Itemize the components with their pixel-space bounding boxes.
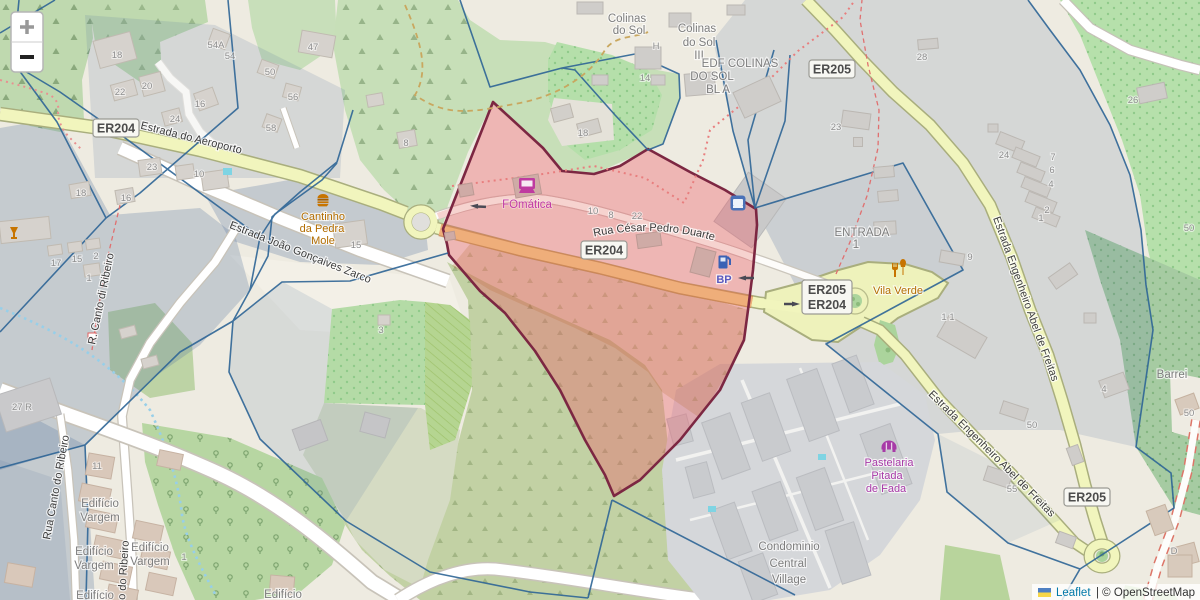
svg-text:Colinas: Colinas (608, 13, 647, 25)
svg-text:15: 15 (72, 254, 83, 265)
svg-text:1: 1 (86, 273, 91, 284)
svg-text:18: 18 (112, 50, 123, 61)
svg-text:| © OpenStreetMap: | © OpenStreetMap (1096, 587, 1195, 599)
svg-text:4: 4 (1101, 384, 1106, 395)
svg-text:EDF COLINAS: EDF COLINAS (702, 58, 779, 70)
svg-text:Vargem: Vargem (74, 560, 113, 572)
svg-text:23: 23 (147, 162, 158, 173)
svg-text:BP: BP (716, 274, 731, 286)
svg-text:Mole: Mole (311, 235, 335, 247)
svg-text:1: 1 (853, 239, 859, 251)
svg-text:2: 2 (93, 251, 98, 262)
svg-text:do Sol: do Sol (613, 25, 646, 37)
svg-text:11: 11 (92, 461, 102, 472)
svg-text:DO SOL: DO SOL (690, 71, 734, 83)
svg-text:10: 10 (194, 169, 205, 180)
svg-text:ER204: ER204 (97, 122, 135, 136)
svg-text:1 1: 1 1 (941, 312, 954, 323)
svg-text:26: 26 (1128, 95, 1139, 106)
svg-text:Leaflet: Leaflet (1056, 587, 1091, 599)
svg-text:24: 24 (999, 150, 1010, 161)
svg-text:Vila Verde: Vila Verde (873, 285, 923, 297)
svg-text:20: 20 (142, 81, 153, 92)
svg-text:9: 9 (967, 252, 972, 263)
svg-text:7: 7 (1050, 152, 1055, 163)
svg-text:27 R: 27 R (12, 402, 32, 413)
svg-text:55: 55 (1007, 484, 1018, 495)
svg-text:Cantinho: Cantinho (301, 211, 345, 223)
svg-text:50: 50 (265, 67, 276, 78)
svg-text:18: 18 (578, 128, 589, 139)
svg-text:1: 1 (181, 552, 186, 563)
svg-text:2: 2 (1044, 205, 1049, 216)
svg-text:Edifício: Edifício (264, 589, 302, 600)
svg-text:23: 23 (831, 122, 842, 133)
svg-text:Pitada: Pitada (871, 470, 903, 482)
svg-text:ER205: ER205 (813, 63, 851, 77)
svg-text:ENTRADA: ENTRADA (835, 227, 890, 239)
svg-text:ER204: ER204 (808, 298, 846, 312)
svg-text:FOmática: FOmática (502, 199, 552, 211)
svg-text:15: 15 (351, 240, 362, 251)
svg-text:4: 4 (1048, 179, 1053, 190)
svg-text:1: 1 (1038, 213, 1043, 224)
svg-text:do Sol: do Sol (683, 37, 716, 49)
svg-text:da Pedra: da Pedra (300, 223, 346, 235)
svg-text:de Fada: de Fada (866, 483, 907, 495)
svg-text:18: 18 (76, 188, 87, 199)
svg-text:17: 17 (51, 258, 62, 269)
svg-text:Colinas: Colinas (678, 23, 717, 35)
svg-text:ER205: ER205 (1068, 491, 1106, 505)
svg-text:6: 6 (1049, 165, 1054, 176)
svg-text:Condominio: Condominio (758, 541, 819, 553)
svg-text:Edifício: Edifício (76, 590, 114, 600)
svg-text:16: 16 (195, 99, 206, 110)
svg-text:ER204: ER204 (585, 244, 623, 258)
svg-text:Edifício: Edifício (131, 542, 169, 554)
svg-text:8: 8 (403, 138, 408, 149)
svg-text:3: 3 (378, 325, 383, 336)
svg-text:47: 47 (308, 42, 319, 53)
svg-text:10: 10 (588, 206, 599, 217)
svg-text:8: 8 (608, 210, 613, 221)
svg-text:50: 50 (1184, 223, 1195, 234)
svg-text:Barrei: Barrei (1157, 369, 1188, 381)
svg-text:D: D (1171, 546, 1178, 557)
svg-text:Edifício: Edifício (75, 546, 113, 558)
svg-text:22: 22 (632, 211, 643, 222)
svg-text:54: 54 (225, 51, 236, 62)
svg-text:Central: Central (769, 558, 806, 570)
svg-text:Pastelaria: Pastelaria (865, 457, 915, 469)
svg-text:56: 56 (288, 92, 299, 103)
svg-text:50: 50 (1184, 408, 1195, 419)
svg-text:58: 58 (266, 123, 277, 134)
svg-text:BL A: BL A (706, 84, 730, 96)
svg-text:Vargem: Vargem (130, 556, 169, 568)
svg-text:54A: 54A (208, 40, 226, 51)
svg-text:Vargem: Vargem (80, 512, 119, 524)
svg-text:24: 24 (170, 114, 181, 125)
svg-text:14: 14 (640, 73, 651, 84)
svg-text:16: 16 (121, 193, 132, 204)
svg-text:Village: Village (772, 574, 806, 586)
svg-text:ER205: ER205 (808, 283, 846, 297)
svg-text:28: 28 (917, 52, 928, 63)
svg-text:50: 50 (1027, 420, 1038, 431)
svg-text:22: 22 (115, 87, 126, 98)
svg-text:H: H (653, 41, 660, 52)
svg-text:Edifício: Edifício (81, 498, 119, 510)
